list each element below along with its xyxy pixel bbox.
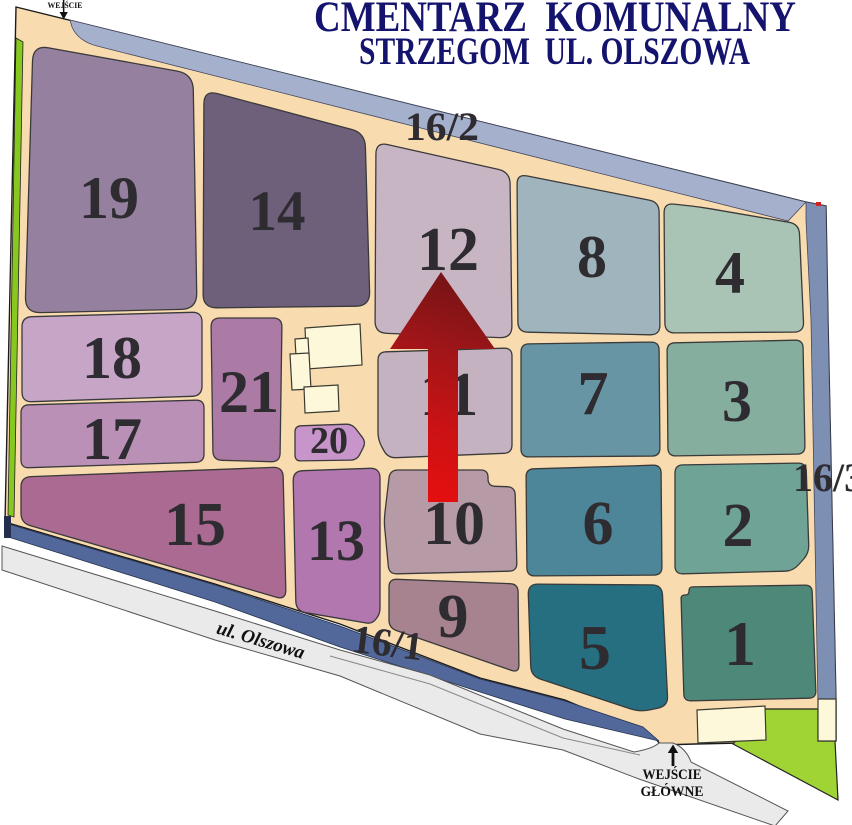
svg-text:STRZEGOM UL. OLSZOWA: STRZEGOM UL. OLSZOWA xyxy=(359,30,750,73)
svg-text:3: 3 xyxy=(722,368,752,434)
svg-text:9: 9 xyxy=(438,583,469,651)
svg-text:16/3: 16/3 xyxy=(793,455,852,500)
svg-text:GŁÓWNE: GŁÓWNE xyxy=(641,783,704,800)
svg-text:12: 12 xyxy=(417,216,479,284)
svg-text:2: 2 xyxy=(723,492,754,560)
svg-text:7: 7 xyxy=(578,360,609,428)
svg-text:18: 18 xyxy=(82,325,142,391)
svg-text:13: 13 xyxy=(307,508,365,573)
svg-text:WEJŚCIE: WEJŚCIE xyxy=(48,0,83,10)
svg-text:14: 14 xyxy=(249,180,306,243)
svg-text:8: 8 xyxy=(577,224,607,290)
svg-text:19: 19 xyxy=(79,165,139,231)
svg-text:17: 17 xyxy=(82,406,142,472)
svg-text:1: 1 xyxy=(724,608,756,679)
svg-text:5: 5 xyxy=(579,612,611,683)
svg-text:6: 6 xyxy=(583,490,614,558)
svg-text:15: 15 xyxy=(164,491,226,559)
svg-text:16/1: 16/1 xyxy=(350,616,426,669)
svg-text:21: 21 xyxy=(219,359,279,425)
svg-text:WEJŚCIE: WEJŚCIE xyxy=(643,766,702,783)
svg-text:16/2: 16/2 xyxy=(405,104,479,149)
svg-text:20: 20 xyxy=(310,420,348,462)
svg-text:4: 4 xyxy=(715,240,745,306)
